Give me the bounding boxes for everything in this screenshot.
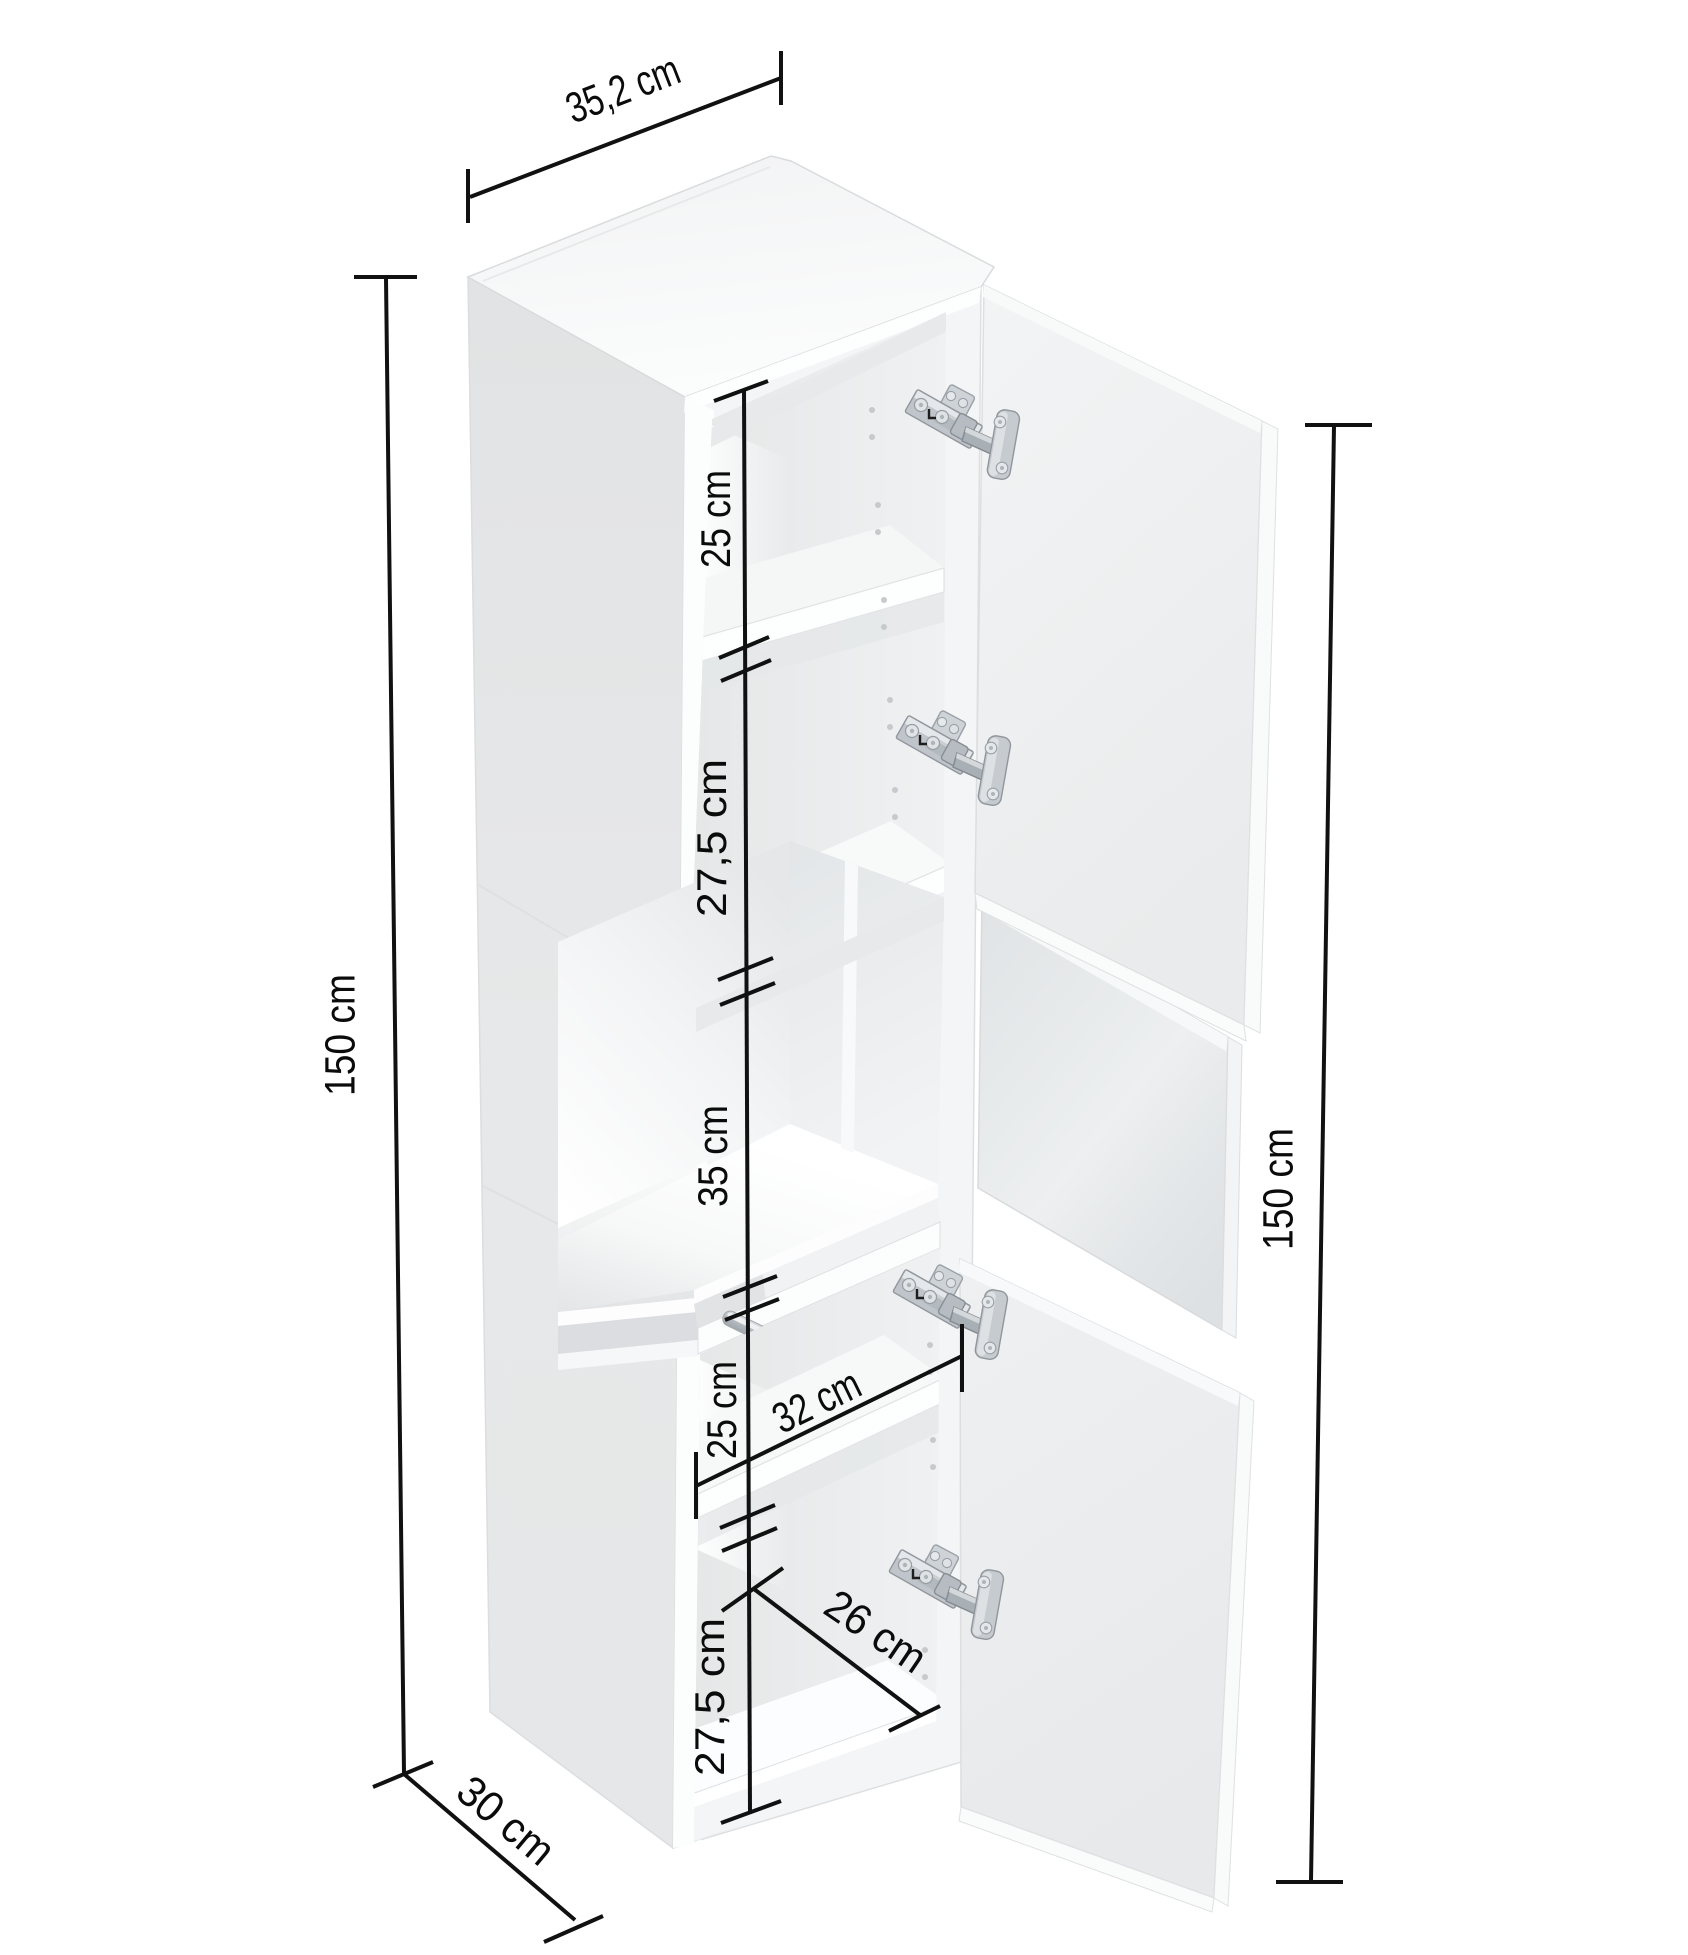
svg-text:25 cm: 25 cm xyxy=(698,1361,745,1459)
svg-text:150 cm: 150 cm xyxy=(1254,1128,1302,1250)
svg-text:25 cm: 25 cm xyxy=(692,470,739,568)
svg-text:35 cm: 35 cm xyxy=(689,1105,736,1207)
svg-text:150 cm: 150 cm xyxy=(316,974,364,1096)
svg-text:27,5 cm: 27,5 cm xyxy=(686,1618,733,1776)
svg-text:27,5 cm: 27,5 cm xyxy=(688,759,735,917)
